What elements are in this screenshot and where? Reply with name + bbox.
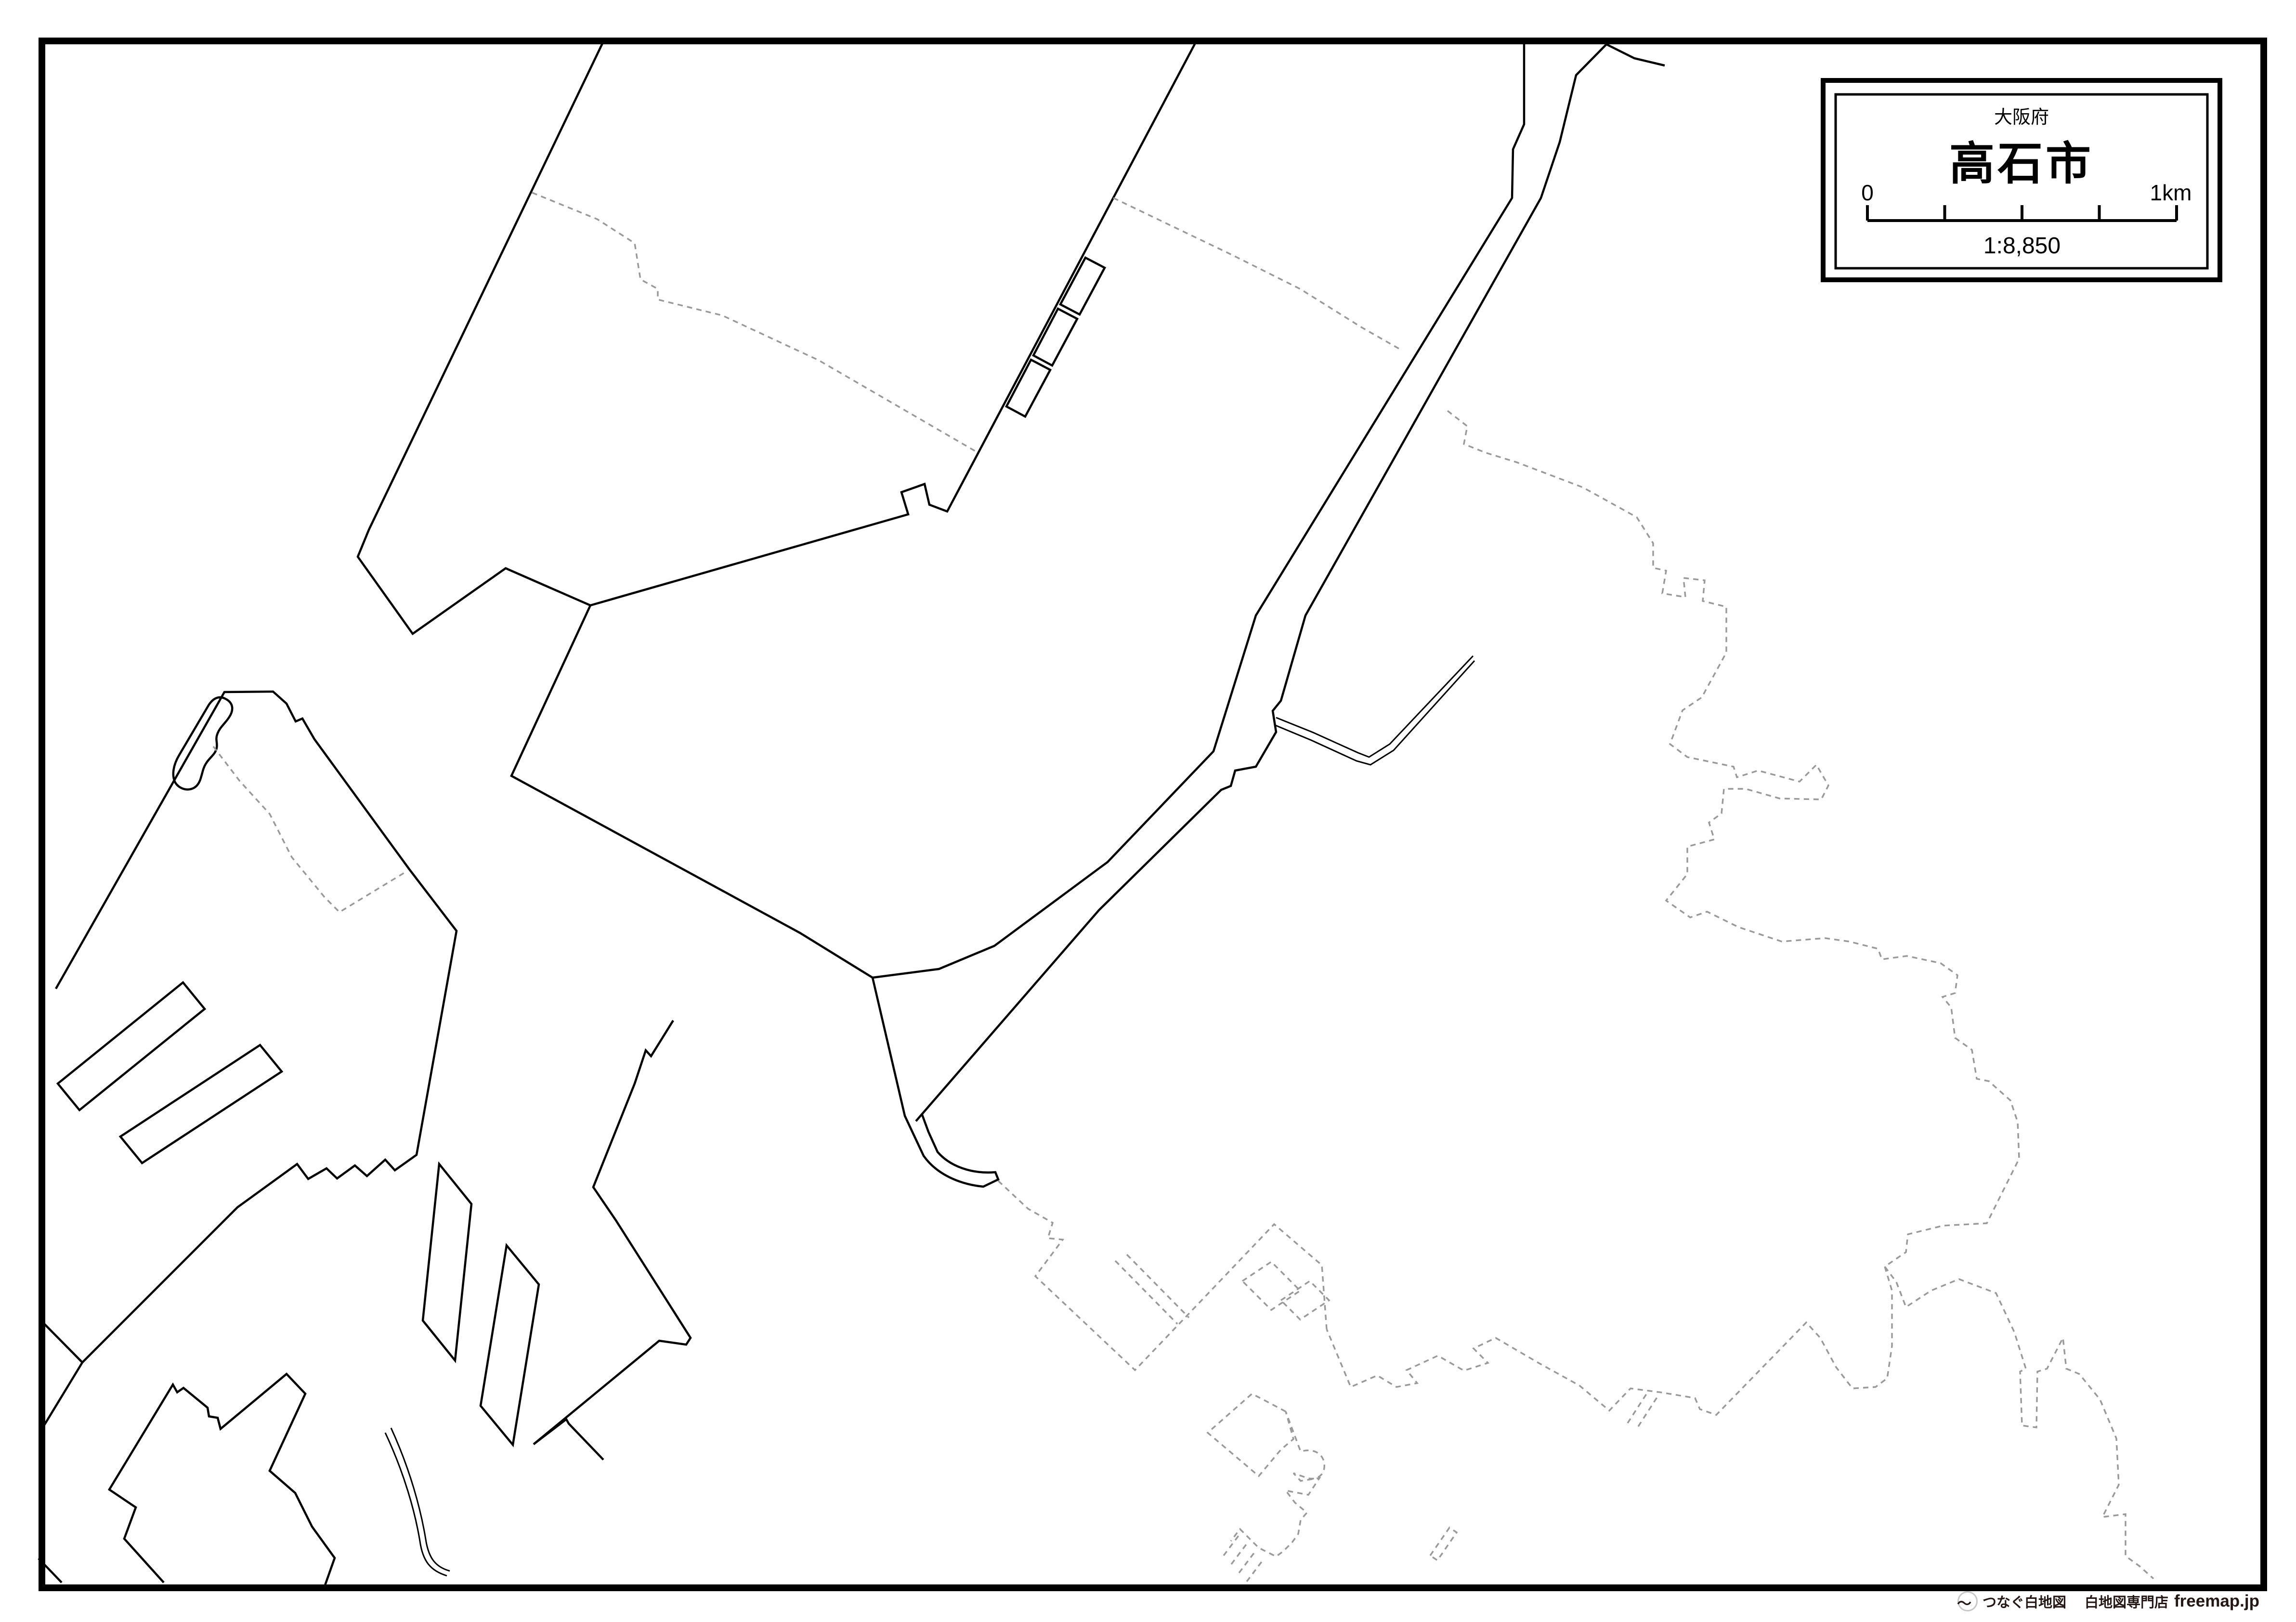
peninsula-outline — [56, 692, 457, 1362]
river-channel-north — [1276, 656, 1473, 757]
title-box: 大阪府 高石市 0 1km 1:8,850 — [1823, 80, 2220, 280]
boundary-hatch-block-1 — [1242, 1262, 1300, 1310]
wave-circle-icon — [1957, 1591, 1978, 1611]
boundary-hatch-strip — [1224, 1534, 1263, 1582]
boundary-double-diag-1 — [1115, 1261, 1177, 1324]
boundary-harbour-diamond — [998, 1181, 1327, 1370]
map-page: 大阪府 高石市 0 1km 1:8,850 つなぐ白地図 白地図専門店 free… — [0, 0, 2296, 1622]
boundary-slash-2 — [1638, 1395, 1658, 1426]
scale-max-label: 1km — [2150, 180, 2192, 205]
coastline-east — [590, 41, 1196, 605]
scale-zero-label: 0 — [1861, 180, 1874, 205]
coastline-group — [39, 41, 1665, 1589]
south-pier-complex — [534, 1020, 691, 1460]
coastline-west — [358, 41, 998, 1187]
inlet-hook — [173, 697, 232, 789]
boundary-south-branch — [1327, 1267, 1892, 1415]
canal-right-bank — [916, 44, 1606, 1121]
boundary-double-diag-2 — [1127, 1255, 1189, 1318]
harbour-inlet-2 — [120, 1045, 282, 1163]
berth-piers — [1006, 258, 1105, 417]
boundary-lower-chain — [1208, 1394, 1324, 1557]
scale-ratio-label: 1:8,850 — [1983, 233, 2061, 259]
boundary-group — [213, 193, 2153, 1582]
pier-sliver-1 — [423, 1164, 471, 1360]
footer-shop-group: 白地図専門店 freemap.jp — [2085, 1591, 2259, 1611]
footer-shop: 白地図専門店 — [2085, 1591, 2168, 1611]
boundary-hatch-block-2 — [1281, 1281, 1329, 1320]
harbour-inlet-1 — [58, 982, 205, 1110]
pier-sliver-2 — [481, 1245, 539, 1445]
prefecture-label: 大阪府 — [1994, 107, 2049, 128]
river-curve-west — [385, 1433, 447, 1576]
footer-site: freemap.jp — [2174, 1592, 2259, 1611]
boundary-east-meander — [1448, 411, 2153, 1579]
boundary-slash-1 — [1628, 1392, 1648, 1423]
south-west-landmass — [109, 1374, 335, 1589]
canal-left-bank — [873, 44, 1524, 978]
boundary-inland-mid — [1113, 198, 1400, 349]
footer-credit: つなぐ白地図 白地図専門店 freemap.jp — [0, 1590, 2259, 1612]
boundary-peninsula — [213, 746, 407, 912]
coastline-pennant — [1606, 44, 1665, 65]
river-curve-east — [391, 1428, 450, 1571]
map-canvas: 大阪府 高石市 0 1km 1:8,850 — [0, 0, 2296, 1622]
boundary-inland-west — [532, 193, 978, 453]
shore-notch — [44, 1324, 82, 1425]
river-channel-south — [1274, 661, 1474, 765]
boundary-islet — [1430, 1528, 1457, 1560]
city-title: 高石市 — [1949, 138, 2094, 189]
footer-brand: つなぐ白地図 — [1983, 1591, 2066, 1611]
